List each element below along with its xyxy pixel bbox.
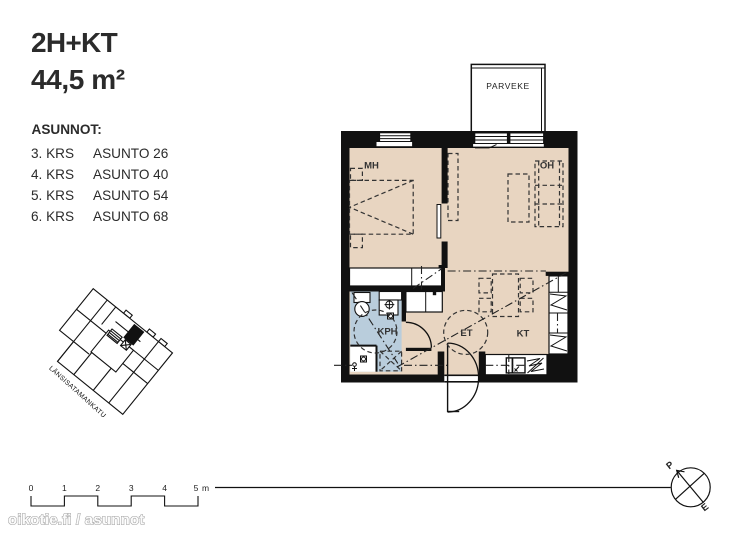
svg-text:P: P (664, 459, 676, 472)
svg-text:oikotie.fi / asunnot: oikotie.fi / asunnot (8, 512, 145, 529)
svg-text:E: E (699, 501, 711, 514)
svg-text:ASUNTO 68: ASUNTO 68 (93, 209, 168, 224)
svg-text:ASUNTO 26: ASUNTO 26 (93, 146, 168, 161)
svg-text:3. KRS: 3. KRS (31, 146, 74, 161)
svg-text:2: 2 (95, 483, 100, 493)
svg-text:3: 3 (129, 483, 134, 493)
svg-text:6. KRS: 6. KRS (31, 209, 74, 224)
svg-text:KPH: KPH (377, 327, 397, 338)
svg-text:0: 0 (29, 483, 34, 493)
svg-text:MH: MH (364, 161, 379, 172)
svg-text:1: 1 (62, 483, 67, 493)
svg-text:2H+KT: 2H+KT (31, 27, 118, 58)
svg-text:ASUNTO 40: ASUNTO 40 (93, 167, 169, 182)
svg-text:5. KRS: 5. KRS (31, 188, 74, 203)
svg-text:4. KRS: 4. KRS (31, 167, 74, 182)
svg-text:44,5 m²: 44,5 m² (31, 64, 125, 95)
svg-text:5: 5 (194, 483, 199, 493)
svg-text:ET: ET (460, 328, 472, 339)
svg-text:ASUNNOT:: ASUNNOT: (32, 122, 102, 137)
svg-text:4: 4 (162, 483, 167, 493)
svg-text:m: m (202, 483, 209, 493)
svg-text:ASUNTO 54: ASUNTO 54 (93, 188, 169, 203)
svg-text:PARVEKE: PARVEKE (486, 81, 530, 91)
svg-text:OH: OH (540, 161, 554, 172)
svg-text:KT: KT (517, 329, 530, 340)
